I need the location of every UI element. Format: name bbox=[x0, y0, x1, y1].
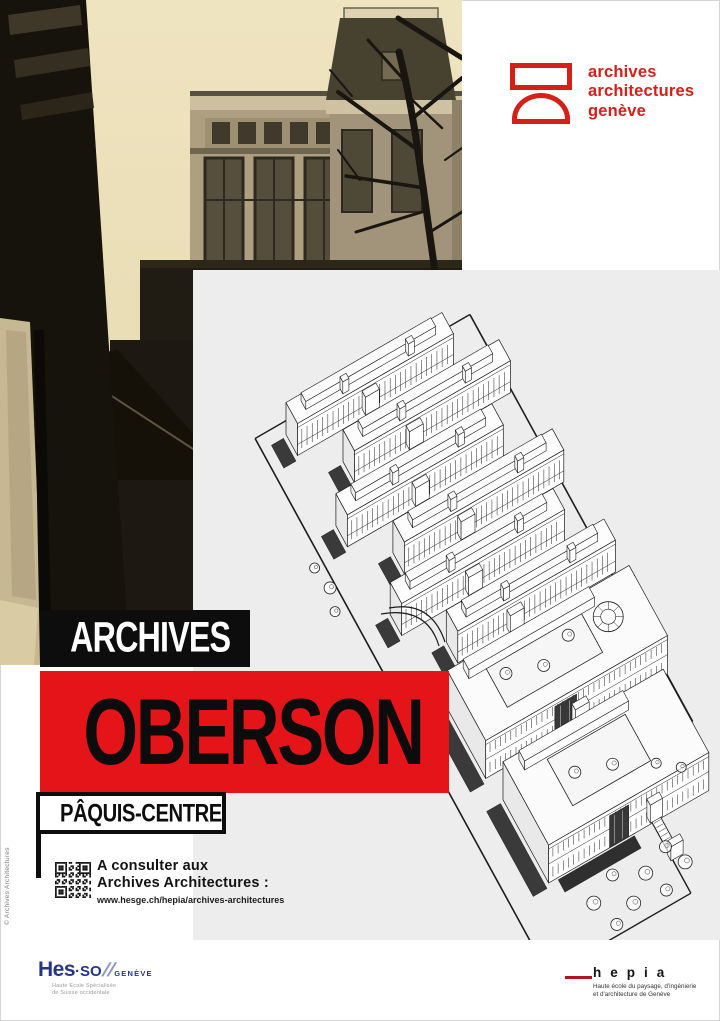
copyright-vertical: © Archives Architectures bbox=[4, 847, 11, 925]
hesso-subtitle: Haute Ecole Spécialisée de Suisse occide… bbox=[52, 983, 153, 997]
kicker-box: ARCHIVES bbox=[40, 610, 250, 667]
brand-line2: architectures bbox=[588, 82, 694, 101]
poster: archives architectures genève ARCHIVES O… bbox=[0, 0, 720, 1021]
qr-code bbox=[55, 862, 91, 898]
brand-wordmark: archives architectures genève bbox=[588, 63, 694, 121]
hesso-main: Hes bbox=[38, 958, 75, 981]
drawing-panel bbox=[193, 270, 720, 940]
hesso-slashes-icon: // bbox=[100, 960, 115, 982]
hepia-wordmark: hepia bbox=[593, 965, 673, 980]
consult-line2: Archives Architectures : bbox=[97, 875, 294, 892]
hepia-red-line bbox=[565, 976, 592, 979]
hesso-region: GENÈVE bbox=[114, 969, 152, 978]
consult-line1: A consulter aux bbox=[97, 858, 294, 875]
brand-line3: genève bbox=[588, 102, 694, 121]
brand-line1: archives bbox=[588, 63, 694, 82]
title-box: OBERSON bbox=[40, 671, 449, 793]
kicker-text: ARCHIVES bbox=[70, 614, 230, 662]
hesso-logo: Hes·SO//GENÈVE Haute Ecole Spécialisée d… bbox=[38, 958, 153, 997]
location-text: PÂQUIS-CENTRE bbox=[60, 798, 222, 827]
hesso-so: ·SO bbox=[75, 963, 102, 980]
title-text: OBERSON bbox=[83, 678, 422, 786]
location-box: PÂQUIS-CENTRE bbox=[36, 792, 226, 834]
consult-url: www.hesge.ch/hepia/archives-architecture… bbox=[97, 895, 284, 906]
axonometric-drawing bbox=[193, 270, 720, 940]
hepia-subtitle: Haute école du paysage, d'ingénierie et … bbox=[593, 983, 696, 999]
logo-arch-icon bbox=[512, 93, 570, 124]
logo-rectangle-icon bbox=[510, 63, 572, 90]
consult-block: A consulter aux Archives Architectures :… bbox=[97, 858, 294, 906]
